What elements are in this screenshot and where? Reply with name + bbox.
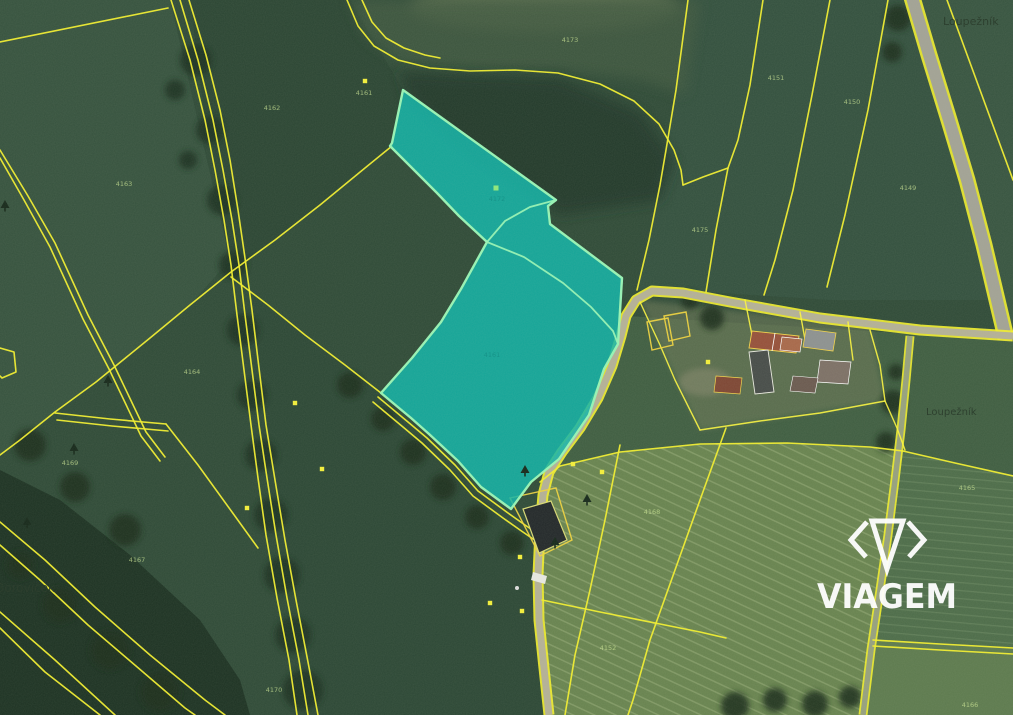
map-canvas: 41724161 4163416241614173415141504149417… <box>0 0 1013 715</box>
aerial-map-view: 41724161 4163416241614173415141504149417… <box>0 0 1013 715</box>
viagem-wordmark: VIAGEM <box>817 577 957 617</box>
